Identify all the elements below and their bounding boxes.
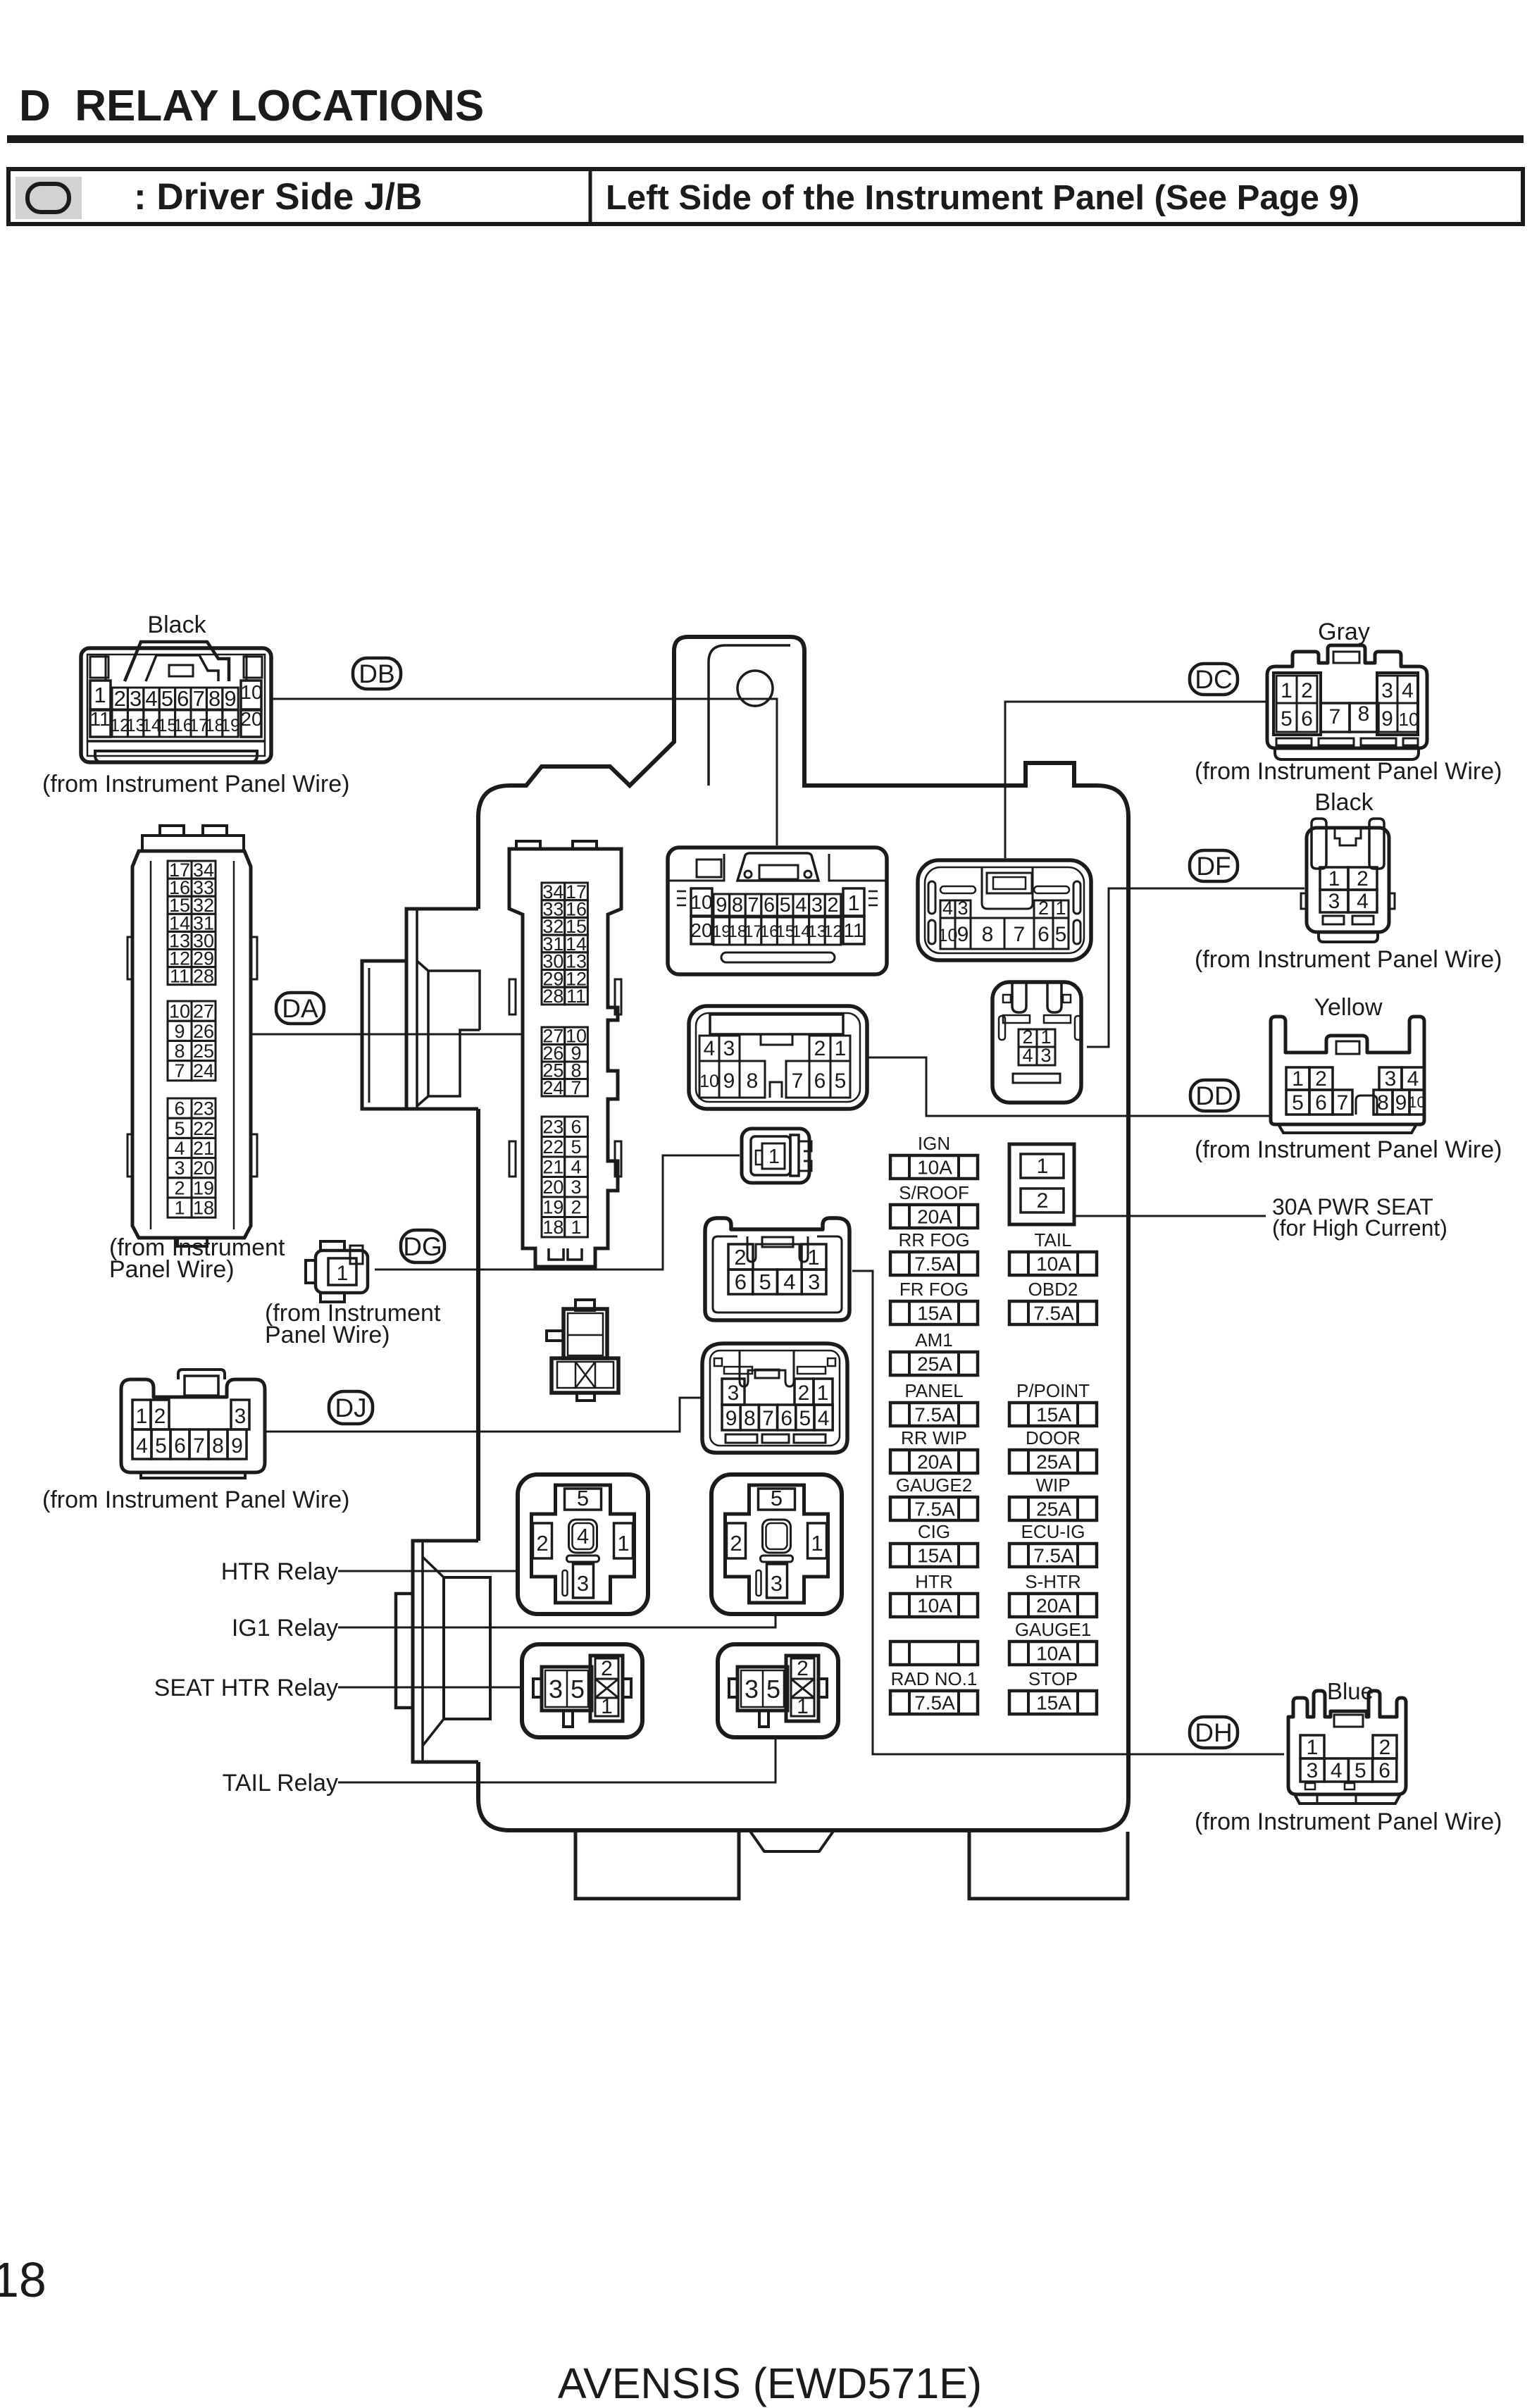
- svg-text:8: 8: [732, 894, 743, 917]
- svg-text:AVENSIS (EWD571E): AVENSIS (EWD571E): [558, 2359, 982, 2407]
- svg-text:4: 4: [577, 1524, 589, 1549]
- svg-text:1: 1: [1307, 1736, 1319, 1759]
- svg-text:1: 1: [1292, 1067, 1304, 1091]
- svg-text:DF: DF: [1196, 852, 1231, 881]
- svg-text:DB: DB: [359, 659, 394, 688]
- svg-text:6: 6: [1315, 1091, 1327, 1115]
- svg-text:2: 2: [536, 1531, 548, 1556]
- svg-text:4: 4: [1331, 1759, 1343, 1782]
- svg-text:19: 19: [193, 1177, 214, 1198]
- svg-text:8: 8: [982, 923, 994, 946]
- svg-text:1: 1: [1281, 679, 1293, 702]
- svg-text:6: 6: [735, 1270, 747, 1294]
- svg-text:1: 1: [1037, 1155, 1049, 1178]
- svg-text:20: 20: [240, 708, 262, 730]
- svg-text:22: 22: [542, 1136, 563, 1158]
- svg-text:19: 19: [542, 1197, 563, 1218]
- svg-text:2: 2: [1037, 1189, 1049, 1212]
- svg-text:1: 1: [807, 1245, 819, 1270]
- svg-text:SEAT HTR Relay: SEAT HTR Relay: [154, 1675, 338, 1701]
- svg-text:2: 2: [1038, 898, 1049, 919]
- svg-text:4: 4: [1402, 679, 1414, 702]
- svg-text:3: 3: [808, 1270, 820, 1294]
- svg-text:1: 1: [835, 1037, 847, 1060]
- svg-text:20: 20: [193, 1158, 214, 1179]
- svg-text:(from Instrument Panel Wire): (from Instrument Panel Wire): [1195, 1808, 1502, 1835]
- svg-text:5: 5: [174, 1118, 185, 1139]
- svg-text:1: 1: [571, 1217, 582, 1238]
- svg-text:PANEL: PANEL: [904, 1380, 963, 1401]
- svg-text:6: 6: [177, 686, 189, 711]
- svg-text:25A: 25A: [1036, 1451, 1071, 1473]
- svg-text:(from Instrument Panel Wire): (from Instrument Panel Wire): [1195, 758, 1502, 785]
- svg-text:STOP: STOP: [1028, 1668, 1078, 1689]
- svg-text:S/ROOF: S/ROOF: [899, 1182, 969, 1203]
- svg-text:9: 9: [231, 1434, 243, 1458]
- svg-text:15A: 15A: [917, 1303, 952, 1324]
- svg-text:GAUGE1: GAUGE1: [1015, 1619, 1091, 1640]
- svg-text:3: 3: [723, 1037, 735, 1060]
- svg-text:3: 3: [571, 1177, 582, 1198]
- svg-text:4: 4: [1022, 1045, 1033, 1066]
- svg-text:20: 20: [542, 1177, 563, 1198]
- svg-text:: Driver Side J/B: : Driver Side J/B: [134, 176, 422, 218]
- svg-text:6: 6: [1038, 923, 1050, 946]
- svg-text:5: 5: [771, 1486, 783, 1510]
- svg-text:2: 2: [114, 686, 126, 711]
- svg-text:10A: 10A: [917, 1157, 952, 1179]
- svg-text:18: 18: [0, 2252, 46, 2307]
- svg-text:4: 4: [704, 1037, 716, 1060]
- svg-text:28: 28: [542, 986, 563, 1007]
- svg-text:26: 26: [193, 1021, 214, 1042]
- svg-text:7: 7: [174, 1060, 185, 1081]
- svg-text:TAIL: TAIL: [1035, 1229, 1072, 1250]
- svg-text:19: 19: [220, 716, 240, 736]
- svg-text:28: 28: [193, 966, 214, 987]
- svg-text:RR WIP: RR WIP: [901, 1427, 967, 1448]
- svg-text:1: 1: [768, 1146, 780, 1168]
- svg-text:10: 10: [699, 1072, 719, 1091]
- svg-text:7.5A: 7.5A: [1033, 1303, 1074, 1324]
- svg-text:10A: 10A: [1036, 1643, 1071, 1665]
- svg-text:7: 7: [193, 686, 205, 711]
- svg-text:2: 2: [154, 1405, 166, 1428]
- svg-text:3: 3: [174, 1158, 185, 1179]
- svg-text:21: 21: [542, 1157, 563, 1178]
- svg-text:DH: DH: [1195, 1718, 1232, 1747]
- svg-text:5: 5: [799, 1407, 811, 1430]
- svg-text:23: 23: [542, 1117, 563, 1138]
- svg-text:7: 7: [1014, 923, 1026, 946]
- svg-text:(from Instrument Panel Wire): (from Instrument Panel Wire): [1195, 946, 1502, 973]
- svg-text:CIG: CIG: [918, 1521, 950, 1542]
- svg-text:6: 6: [1301, 707, 1313, 731]
- svg-text:8: 8: [1358, 702, 1370, 726]
- svg-text:1: 1: [601, 1695, 613, 1718]
- svg-text:4: 4: [818, 1407, 830, 1430]
- svg-text:Blue: Blue: [1327, 1678, 1374, 1704]
- svg-text:9: 9: [716, 894, 727, 917]
- svg-text:6: 6: [764, 894, 775, 917]
- svg-text:2: 2: [174, 1177, 185, 1198]
- svg-text:11: 11: [843, 919, 864, 941]
- svg-text:9: 9: [1381, 707, 1393, 731]
- svg-text:9: 9: [957, 923, 969, 946]
- svg-text:2: 2: [1301, 679, 1313, 702]
- svg-text:DG: DG: [403, 1232, 442, 1261]
- svg-text:AM1: AM1: [915, 1329, 952, 1351]
- svg-text:1: 1: [817, 1382, 829, 1405]
- svg-text:P/POINT: P/POINT: [1016, 1380, 1090, 1401]
- svg-text:Yellow: Yellow: [1314, 994, 1382, 1021]
- svg-text:7: 7: [1337, 1091, 1349, 1115]
- svg-text:1: 1: [847, 890, 859, 915]
- svg-text:23: 23: [193, 1098, 214, 1119]
- svg-text:4: 4: [783, 1270, 795, 1294]
- svg-text:3: 3: [957, 898, 968, 919]
- svg-text:5: 5: [759, 1270, 771, 1294]
- svg-text:2: 2: [797, 1657, 809, 1680]
- svg-text:OBD2: OBD2: [1028, 1279, 1078, 1300]
- svg-text:7: 7: [193, 1434, 205, 1458]
- svg-text:8: 8: [208, 686, 220, 711]
- svg-text:4: 4: [174, 1138, 185, 1159]
- svg-text:18: 18: [193, 1198, 214, 1219]
- svg-text:6: 6: [571, 1117, 582, 1138]
- svg-text:10A: 10A: [1036, 1253, 1071, 1275]
- svg-text:(from Instrument Panel Wire): (from Instrument Panel Wire): [42, 771, 349, 798]
- svg-text:WIP: WIP: [1035, 1475, 1070, 1496]
- svg-text:7.5A: 7.5A: [1033, 1545, 1074, 1567]
- svg-text:Black: Black: [147, 612, 206, 638]
- svg-text:5: 5: [835, 1069, 847, 1093]
- svg-text:3: 3: [771, 1571, 783, 1596]
- svg-text:18: 18: [542, 1217, 563, 1238]
- svg-text:RAD NO.1: RAD NO.1: [891, 1668, 978, 1689]
- svg-text:2: 2: [1315, 1067, 1327, 1091]
- svg-text:Left Side of the Instrument Pa: Left Side of the Instrument Panel (See P…: [606, 179, 1359, 217]
- svg-text:3: 3: [1381, 679, 1393, 702]
- svg-text:2: 2: [827, 894, 838, 917]
- svg-text:8: 8: [744, 1407, 756, 1430]
- svg-text:5: 5: [577, 1486, 589, 1510]
- svg-text:1: 1: [811, 1531, 823, 1556]
- svg-text:25: 25: [193, 1041, 214, 1062]
- svg-text:9: 9: [174, 1021, 185, 1042]
- svg-text:1: 1: [797, 1695, 809, 1718]
- svg-text:Panel Wire): Panel Wire): [265, 1322, 390, 1348]
- svg-text:4: 4: [145, 686, 157, 711]
- svg-text:RR FOG: RR FOG: [898, 1229, 969, 1250]
- svg-text:25A: 25A: [917, 1353, 952, 1375]
- svg-text:5: 5: [571, 1136, 582, 1158]
- svg-text:7: 7: [571, 1077, 582, 1098]
- svg-text:7.5A: 7.5A: [914, 1692, 955, 1714]
- svg-text:6: 6: [814, 1069, 826, 1093]
- svg-text:3: 3: [745, 1675, 759, 1703]
- svg-text:DD: DD: [1195, 1081, 1233, 1110]
- svg-text:1: 1: [1055, 898, 1066, 919]
- svg-text:1: 1: [337, 1262, 349, 1285]
- svg-text:5: 5: [1281, 707, 1293, 731]
- svg-text:1: 1: [174, 1198, 185, 1219]
- svg-text:9: 9: [725, 1407, 737, 1430]
- svg-text:8: 8: [174, 1041, 185, 1062]
- svg-text:2: 2: [798, 1382, 810, 1405]
- svg-text:HTR Relay: HTR Relay: [221, 1558, 338, 1585]
- svg-text:7.5A: 7.5A: [914, 1404, 955, 1426]
- svg-text:20: 20: [690, 919, 712, 941]
- svg-text:Panel Wire): Panel Wire): [109, 1256, 235, 1283]
- svg-text:IGN: IGN: [918, 1133, 950, 1154]
- svg-text:FR FOG: FR FOG: [899, 1279, 969, 1300]
- svg-text:TAIL Relay: TAIL Relay: [223, 1770, 338, 1796]
- svg-text:2: 2: [1357, 867, 1369, 890]
- svg-text:25A: 25A: [1036, 1498, 1071, 1520]
- svg-text:4: 4: [942, 898, 953, 919]
- svg-text:DJ: DJ: [335, 1394, 366, 1422]
- svg-text:9: 9: [224, 686, 236, 711]
- svg-text:3: 3: [811, 894, 823, 917]
- svg-text:1: 1: [617, 1531, 629, 1556]
- svg-text:5: 5: [571, 1675, 585, 1703]
- svg-text:5: 5: [1354, 1759, 1366, 1782]
- svg-text:HTR: HTR: [915, 1571, 952, 1592]
- svg-text:20A: 20A: [917, 1206, 952, 1228]
- svg-text:9: 9: [1395, 1091, 1407, 1115]
- svg-text:21: 21: [193, 1138, 214, 1159]
- svg-text:2: 2: [1379, 1736, 1391, 1759]
- svg-text:5: 5: [766, 1675, 780, 1703]
- svg-text:5: 5: [1055, 923, 1067, 946]
- svg-text:12: 12: [823, 922, 842, 941]
- svg-text:3: 3: [728, 1382, 740, 1405]
- svg-text:7.5A: 7.5A: [914, 1253, 955, 1275]
- svg-text:10: 10: [1399, 709, 1419, 730]
- svg-text:5: 5: [1292, 1091, 1304, 1115]
- svg-text:1: 1: [94, 683, 106, 707]
- svg-text:(from Instrument Panel Wire): (from Instrument Panel Wire): [1195, 1136, 1502, 1163]
- svg-text:IG1 Relay: IG1 Relay: [232, 1615, 338, 1641]
- svg-text:5: 5: [780, 894, 791, 917]
- svg-text:S-HTR: S-HTR: [1025, 1571, 1081, 1592]
- svg-text:8: 8: [212, 1434, 224, 1458]
- svg-text:3: 3: [1307, 1759, 1319, 1782]
- svg-text:(from Instrument Panel Wire): (from Instrument Panel Wire): [42, 1487, 349, 1513]
- svg-text:22: 22: [193, 1118, 214, 1139]
- svg-text:ECU-IG: ECU-IG: [1021, 1521, 1085, 1542]
- svg-text:8: 8: [747, 1069, 759, 1093]
- svg-text:2: 2: [571, 1197, 582, 1218]
- svg-text:24: 24: [542, 1077, 563, 1098]
- svg-text:3: 3: [577, 1571, 589, 1596]
- svg-text:15A: 15A: [917, 1545, 952, 1567]
- svg-text:20A: 20A: [917, 1451, 952, 1473]
- svg-text:6: 6: [174, 1434, 186, 1458]
- svg-text:3: 3: [1040, 1045, 1051, 1066]
- svg-text:4: 4: [136, 1434, 148, 1458]
- svg-text:DC: DC: [1195, 665, 1232, 694]
- svg-text:11: 11: [89, 708, 110, 730]
- svg-text:24: 24: [193, 1060, 214, 1081]
- svg-text:D RELAY LOCATIONS: D RELAY LOCATIONS: [19, 82, 484, 130]
- svg-text:15A: 15A: [1036, 1404, 1071, 1426]
- svg-text:7.5A: 7.5A: [914, 1498, 955, 1520]
- svg-text:1: 1: [1328, 867, 1340, 890]
- svg-text:27: 27: [193, 1001, 214, 1022]
- svg-text:4: 4: [1407, 1067, 1419, 1091]
- svg-text:3: 3: [130, 686, 142, 711]
- svg-text:1: 1: [136, 1405, 148, 1428]
- svg-text:10: 10: [690, 891, 712, 913]
- svg-text:3: 3: [235, 1405, 247, 1428]
- svg-text:4: 4: [571, 1157, 582, 1178]
- svg-text:8: 8: [1377, 1091, 1389, 1115]
- svg-text:DA: DA: [282, 994, 318, 1023]
- svg-text:4: 4: [1357, 890, 1369, 913]
- svg-text:7: 7: [762, 1407, 774, 1430]
- svg-text:Black: Black: [1314, 789, 1374, 816]
- svg-text:3: 3: [1385, 1067, 1397, 1091]
- svg-text:2: 2: [734, 1245, 746, 1270]
- svg-text:5: 5: [161, 686, 173, 711]
- svg-text:7: 7: [1329, 705, 1341, 728]
- svg-text:7: 7: [792, 1069, 804, 1093]
- svg-text:(for High Current): (for High Current): [1272, 1215, 1447, 1241]
- svg-text:6: 6: [1378, 1759, 1390, 1782]
- svg-text:Gray: Gray: [1318, 619, 1370, 645]
- svg-text:2: 2: [601, 1657, 613, 1680]
- svg-text:15A: 15A: [1036, 1692, 1071, 1714]
- svg-text:2: 2: [814, 1037, 826, 1060]
- svg-text:3: 3: [1328, 890, 1340, 913]
- svg-text:3: 3: [549, 1675, 563, 1703]
- svg-text:5: 5: [155, 1434, 167, 1458]
- svg-text:4: 4: [795, 894, 807, 917]
- svg-text:7: 7: [747, 894, 759, 917]
- svg-text:11: 11: [566, 986, 586, 1007]
- svg-text:GAUGE2: GAUGE2: [896, 1475, 972, 1496]
- svg-text:10: 10: [1408, 1093, 1425, 1111]
- svg-text:10A: 10A: [917, 1595, 952, 1617]
- svg-text:6: 6: [174, 1098, 185, 1119]
- svg-text:9: 9: [723, 1069, 735, 1093]
- svg-text:DOOR: DOOR: [1026, 1427, 1081, 1448]
- svg-text:6: 6: [780, 1407, 792, 1430]
- svg-text:10: 10: [240, 681, 262, 703]
- svg-text:11: 11: [170, 966, 189, 987]
- svg-text:10: 10: [169, 1001, 190, 1022]
- svg-text:2: 2: [730, 1531, 742, 1556]
- svg-text:20A: 20A: [1036, 1595, 1071, 1617]
